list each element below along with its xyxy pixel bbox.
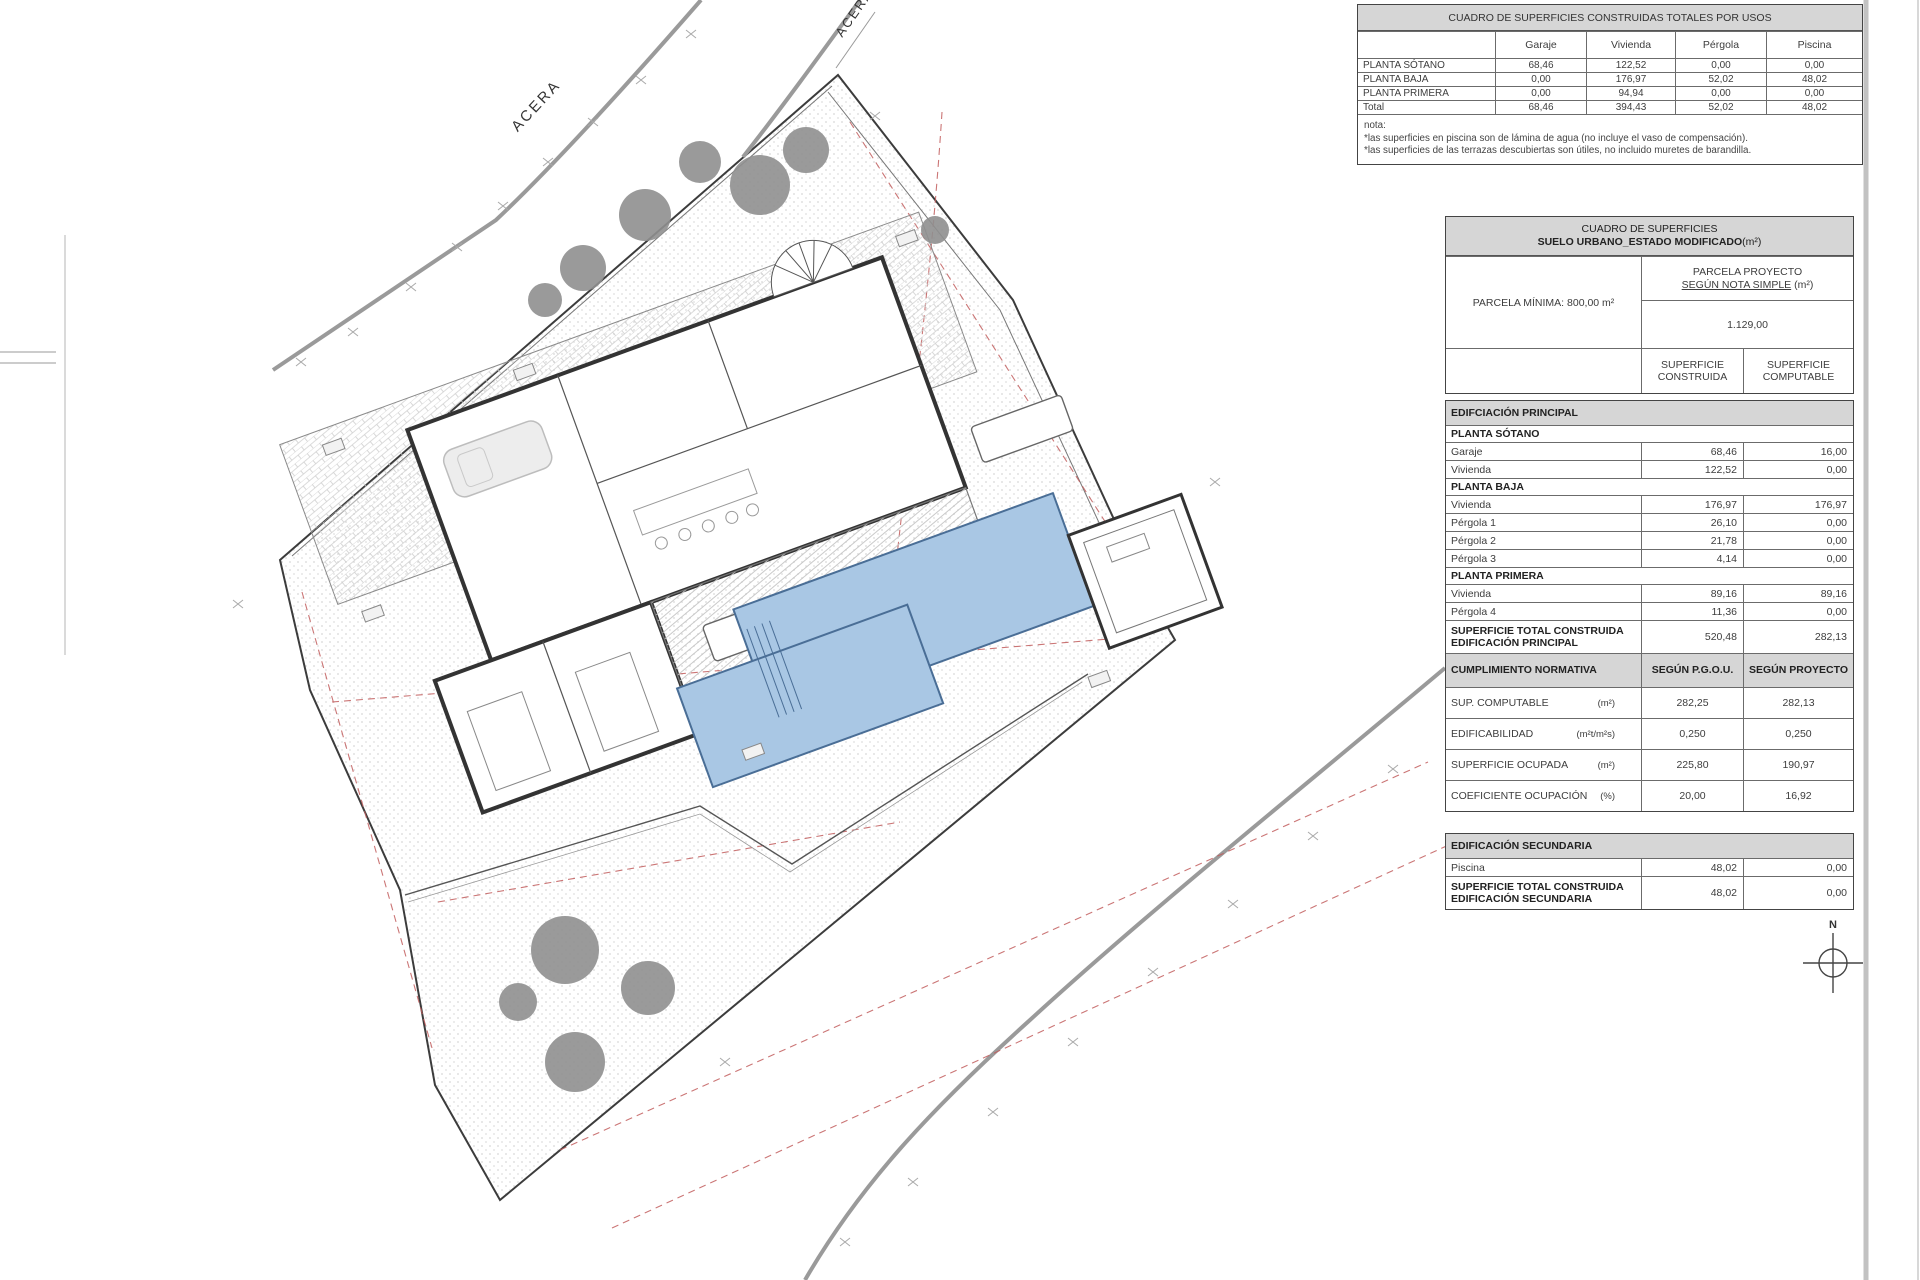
table-row: Pérgola 2 21,78 0,00 (1446, 531, 1853, 549)
total-row-secundaria: SUPERFICIE TOTAL CONSTRUIDA EDIFICACIÓN … (1446, 876, 1853, 909)
table-suelo-urbano-header: CUADRO DE SUPERFICIES SUELO URBANO_ESTAD… (1445, 216, 1854, 394)
table-superficies-usos: CUADRO DE SUPERFICIES CONSTRUIDAS TOTALE… (1357, 4, 1863, 165)
north-compass (1803, 933, 1863, 993)
cumplimiento-header: CUMPLIMIENTO NORMATIVA SEGÚN P.G.O.U. SE… (1446, 653, 1853, 687)
drawing-sheet: ACERA ACERA N CUADRO DE SUPERFICIES CONS… (0, 0, 1920, 1280)
subsection-header: PLANTA BAJA (1446, 478, 1853, 495)
col-pergola: Pérgola (1675, 32, 1766, 58)
col-superficie-computable: SUPERFICIE COMPUTABLE (1743, 349, 1853, 393)
table-row: Pérgola 3 4,14 0,00 (1446, 549, 1853, 567)
table-row: PLANTA SÓTANO 68,46 122,52 0,00 0,00 (1358, 58, 1862, 72)
table-usos-note: nota: *las superficies en piscina son de… (1358, 114, 1862, 164)
subsection-header: PLANTA SÓTANO (1446, 425, 1853, 442)
table-row: Pérgola 1 26,10 0,00 (1446, 513, 1853, 531)
table-row: Garaje 68,46 16,00 (1446, 442, 1853, 460)
table-row: Vivienda 176,97 176,97 (1446, 495, 1853, 513)
col-superficie-construida: SUPERFICIE CONSTRUIDA (1641, 349, 1743, 393)
table-row: Vivienda 89,16 89,16 (1446, 584, 1853, 602)
table-usos-header: Garaje Vivienda Pérgola Piscina (1358, 31, 1862, 58)
norm-row: SUPERFICIE OCUPADA(m²) 225,80 190,97 (1446, 749, 1853, 780)
col-piscina: Piscina (1766, 32, 1862, 58)
total-row-principal: SUPERFICIE TOTAL CONSTRUIDA EDIFICACIÓN … (1446, 620, 1853, 653)
table-row-total: Total 68,46 394,43 52,02 48,02 (1358, 100, 1862, 114)
table-suelo-title: CUADRO DE SUPERFICIES SUELO URBANO_ESTAD… (1446, 217, 1853, 256)
table-row: PLANTA BAJA 0,00 176,97 52,02 48,02 (1358, 72, 1862, 86)
north-label: N (1829, 919, 1837, 931)
section-header: EDIFCIACIÓN PRINCIPAL (1446, 401, 1853, 425)
parcela-row: PARCELA MÍNIMA: 800,00 m² PARCELA PROYEC… (1446, 256, 1853, 348)
norm-row: SUP. COMPUTABLE(m²) 282,25 282,13 (1446, 687, 1853, 718)
table-row: PLANTA PRIMERA 0,00 94,94 0,00 0,00 (1358, 86, 1862, 100)
table-row: Piscina 48,02 0,00 (1446, 858, 1853, 876)
parcela-proyecto-value: 1.129,00 (1642, 301, 1853, 348)
parcela-proyecto-label: PARCELA PROYECTO SEGÚN NOTA SIMPLE (m²) (1642, 257, 1853, 301)
col-vivienda: Vivienda (1586, 32, 1675, 58)
table-edificacion-secundaria: EDIFICACIÓN SECUNDARIA Piscina 48,02 0,0… (1445, 833, 1854, 910)
section-header: EDIFICACIÓN SECUNDARIA (1446, 834, 1853, 858)
norm-row: EDIFICABILIDAD(m²t/m²s) 0,250 0,250 (1446, 718, 1853, 749)
norm-row: COEFICIENTE OCUPACIÓN(%) 20,00 16,92 (1446, 780, 1853, 811)
superficie-columns-header: SUPERFICIE CONSTRUIDA SUPERFICIE COMPUTA… (1446, 348, 1853, 393)
table-row: Pérgola 4 11,36 0,00 (1446, 602, 1853, 620)
table-edificacion-principal: EDIFCIACIÓN PRINCIPAL PLANTA SÓTANO Gara… (1445, 400, 1854, 812)
subsection-header: PLANTA PRIMERA (1446, 567, 1853, 584)
parcela-minima: PARCELA MÍNIMA: 800,00 m² (1446, 257, 1641, 348)
acera-label-top-left: ACERA (508, 77, 564, 136)
table-usos-title: CUADRO DE SUPERFICIES CONSTRUIDAS TOTALE… (1358, 5, 1862, 31)
col-garaje: Garaje (1495, 32, 1586, 58)
table-row: Vivienda 122,52 0,00 (1446, 460, 1853, 478)
